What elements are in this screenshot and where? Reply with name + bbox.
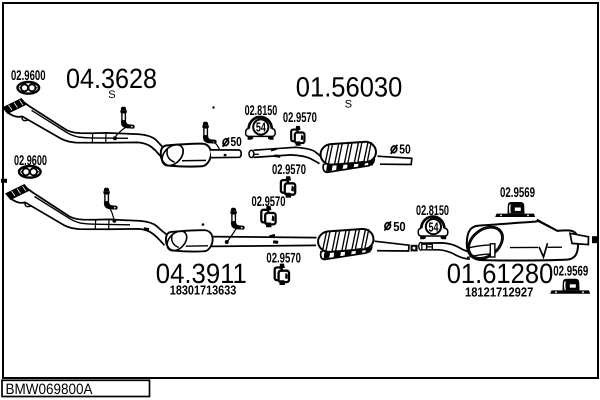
svg-text:02.9569: 02.9569: [500, 184, 535, 200]
svg-text:02.9600: 02.9600: [14, 152, 47, 168]
svg-text:02.9570: 02.9570: [272, 161, 306, 177]
svg-text:BMW069800A: BMW069800A: [6, 381, 93, 398]
svg-text:02.9569: 02.9569: [553, 262, 588, 278]
svg-text:02.9600: 02.9600: [11, 67, 46, 83]
svg-text:50: 50: [399, 142, 411, 157]
svg-text:S: S: [108, 89, 115, 101]
svg-text:18121712927: 18121712927: [465, 285, 533, 300]
svg-text:50: 50: [393, 219, 406, 234]
svg-text:02.9570: 02.9570: [283, 109, 317, 125]
svg-text:50: 50: [231, 134, 242, 149]
svg-text:02.9570: 02.9570: [252, 193, 286, 209]
svg-text:02.9570: 02.9570: [266, 250, 301, 266]
svg-text:02.8150: 02.8150: [245, 102, 278, 118]
svg-text:02.8150: 02.8150: [416, 202, 449, 218]
svg-text:18301713633: 18301713633: [170, 283, 237, 298]
svg-text:S: S: [345, 99, 352, 111]
